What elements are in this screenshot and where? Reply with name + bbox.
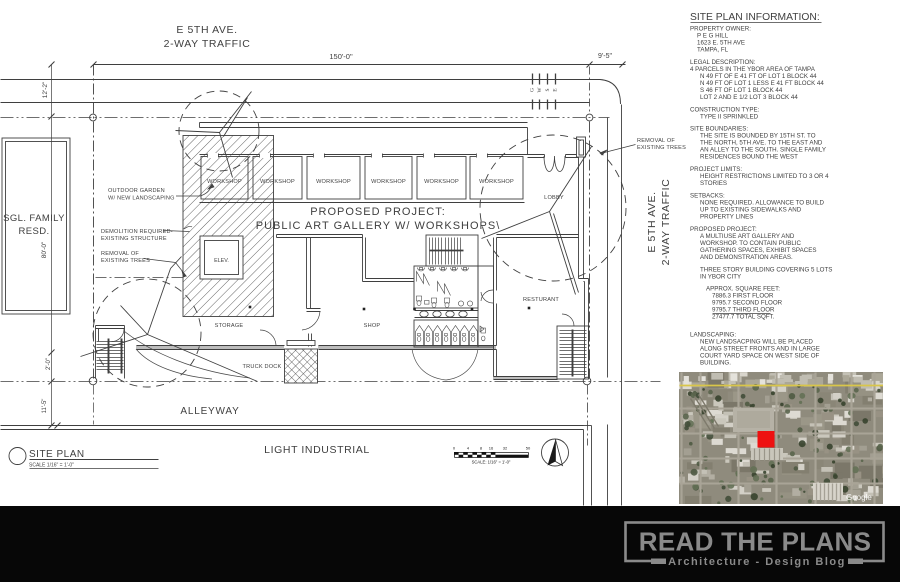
svg-text:LANDSCAPING:: LANDSCAPING: [690,332,736,339]
svg-text:PROPERTY LINES: PROPERTY LINES [700,214,753,221]
svg-text:ALONG STREET FRONTS AND IN LAR: ALONG STREET FRONTS AND IN LARGE [700,346,820,353]
svg-text:Google: Google [846,493,872,502]
svg-text:2'-0": 2'-0" [46,358,52,370]
svg-text:11'-5": 11'-5" [42,399,48,414]
svg-text:THE NORTH, 5TH AVE. TO THE EAS: THE NORTH, 5TH AVE. TO THE EAST AND [700,140,823,147]
svg-text:THE SITE IS BOUNDED BY 15TH ST: THE SITE IS BOUNDED BY 15TH ST. TO [700,133,816,140]
svg-text:S 46 FT OF LOT 1 BLOCK 44: S 46 FT OF LOT 1 BLOCK 44 [700,87,783,94]
svg-text:AN ALLEY TO THE SOUTH. SINGLE: AN ALLEY TO THE SOUTH. SINGLE FAMILY [700,147,826,154]
svg-text:PROPOSED PROJECT:: PROPOSED PROJECT: [310,206,446,218]
svg-text:WORKSHOP. TO CONTAIN PUBLIC: WORKSHOP. TO CONTAIN PUBLIC [700,240,801,247]
svg-text:LIGHT INDUSTRIAL: LIGHT INDUSTRIAL [264,444,370,456]
svg-text:16: 16 [489,446,494,451]
svg-text:TRUCK DOCK: TRUCK DOCK [243,364,282,370]
svg-text:27477.7 TOTAL SQFT.: 27477.7 TOTAL SQFT. [712,314,775,321]
svg-text:N 49 FT OF LOT 1 LESS E 41 FT: N 49 FT OF LOT 1 LESS E 41 FT BLOCK 44 [700,80,824,87]
svg-text:S: S [545,88,551,91]
svg-text:9795.7 THIRD FLOOR: 9795.7 THIRD FLOOR [712,307,775,314]
svg-text:THREE STORY BUILDING COVERING: THREE STORY BUILDING COVERING 5 LOTS [700,266,832,273]
svg-text:E 5TH AVE.: E 5TH AVE. [646,191,658,252]
svg-text:WORKSHOP: WORKSHOP [260,179,295,185]
svg-text:ELEV.: ELEV. [214,258,229,264]
svg-text:SCALE 1/16" = 1'-0": SCALE 1/16" = 1'-0" [29,463,74,469]
svg-text:Architecture - Design Blog: Architecture - Design Blog [668,556,846,568]
svg-text:COURT YARD SPACE ON WEST SIDE: COURT YARD SPACE ON WEST SIDE OF [700,353,820,360]
svg-text:TAMPA, FL: TAMPA, FL [697,47,729,54]
svg-text:RESD.: RESD. [18,226,49,237]
svg-text:ALLEYWAY: ALLEYWAY [180,406,239,417]
svg-text:APPROX. SQUARE FEET:: APPROX. SQUARE FEET: [706,286,780,293]
svg-text:E 5TH AVE.: E 5TH AVE. [176,24,237,36]
svg-text:4 PARCELS IN THE YBOR AREA OF: 4 PARCELS IN THE YBOR AREA OF TAMPA [690,66,816,73]
svg-text:7886.3 FIRST FLOOR: 7886.3 FIRST FLOOR [712,293,774,300]
svg-text:SHOP: SHOP [364,323,381,329]
svg-text:BUILDING.: BUILDING. [700,360,731,367]
svg-text:PROPERTY OWNER:: PROPERTY OWNER: [690,26,751,33]
svg-text:GATHERING SPACES, EXHIBIT SPAC: GATHERING SPACES, EXHIBIT SPACES [700,247,816,254]
svg-text:2-WAY TRAFFIC: 2-WAY TRAFFIC [660,179,672,266]
svg-text:A MULTIUSE ART GALLERY AND: A MULTIUSE ART GALLERY AND [700,233,795,240]
svg-text:REMOVAL OF: REMOVAL OF [101,251,139,257]
svg-text:READ THE PLANS: READ THE PLANS [639,527,871,557]
svg-text:AND DEMONSTRATION AREAS.: AND DEMONSTRATION AREAS. [700,254,793,261]
svg-text:32: 32 [503,446,508,451]
svg-text:W: W [537,87,543,93]
svg-text:REMOVAL OF: REMOVAL OF [637,138,675,144]
svg-text:PROJECT LIMITS:: PROJECT LIMITS: [690,166,742,173]
svg-text:UP TO EXISTING SIDEWALKS AND: UP TO EXISTING SIDEWALKS AND [700,207,802,214]
svg-text:LOBBY: LOBBY [544,195,564,201]
svg-text:12'-2": 12'-2" [42,81,49,98]
svg-text:HEIGHT RESTRICTIONS LIMITED TO: HEIGHT RESTRICTIONS LIMITED TO 3 OR 4 [700,173,829,180]
svg-text:CONSTRUCTION TYPE:: CONSTRUCTION TYPE: [690,106,760,113]
svg-text:NONE REQUIRED. ALLOWANCE TO BU: NONE REQUIRED. ALLOWANCE TO BUILD [700,200,825,207]
svg-text:W/ NEW LANDSCAPING: W/ NEW LANDSCAPING [108,196,175,202]
svg-text:TYPE II SPRINKLED: TYPE II SPRINKLED [700,113,759,120]
svg-text:9'-5": 9'-5" [598,53,612,60]
svg-text:1623 E. 5TH AVE: 1623 E. 5TH AVE [697,40,745,47]
svg-text:SITE PLAN INFORMATION:: SITE PLAN INFORMATION: [690,12,820,23]
svg-text:STORAGE: STORAGE [215,323,244,329]
svg-text:N 49 FT OF E 41 FT OF LOT 1 BL: N 49 FT OF E 41 FT OF LOT 1 BLOCK 44 [700,73,817,80]
svg-text:EXISTING STRUCTURE: EXISTING STRUCTURE [101,236,167,242]
svg-text:IN YBOR CITY: IN YBOR CITY [700,273,741,280]
svg-text:EXISTING TREES: EXISTING TREES [101,258,150,264]
svg-text:WORKSHOP: WORKSHOP [479,179,514,185]
svg-text:SITE BOUNDARIES:: SITE BOUNDARIES: [690,126,748,133]
svg-text:SITE PLAN: SITE PLAN [29,449,85,460]
svg-text:PUBLIC ART GALLERY W/ WORKSHOP: PUBLIC ART GALLERY W/ WORKSHOPS\ [256,220,501,232]
svg-text:P E G HILL: P E G HILL [697,33,729,40]
svg-text:LOT 2 AND E 1/2 LOT 3 BLOCK 44: LOT 2 AND E 1/2 LOT 3 BLOCK 44 [700,94,798,101]
svg-text:EXISTING TREES: EXISTING TREES [637,145,686,151]
svg-text:OUTDOOR GARDEN: OUTDOOR GARDEN [108,188,165,194]
svg-text:NEW LANDSACPING WILL BE PLACED: NEW LANDSACPING WILL BE PLACED [700,339,813,346]
svg-text:SGL. FAMILY: SGL. FAMILY [3,213,65,224]
svg-text:WORKSHOP: WORKSHOP [424,179,459,185]
svg-text:WORKSHOP: WORKSHOP [371,179,406,185]
svg-text:2-WAY TRAFFIC: 2-WAY TRAFFIC [164,38,251,50]
svg-text:WORKSHOP: WORKSHOP [316,179,351,185]
svg-text:RESTURANT: RESTURANT [523,297,559,303]
svg-text:LEGAL DESCRIPTION:: LEGAL DESCRIPTION: [690,59,756,66]
svg-text:STORIES: STORIES [700,180,727,187]
svg-text:50: 50 [526,446,531,451]
svg-text:150'-0": 150'-0" [329,52,353,61]
svg-text:SETBACKS:: SETBACKS: [690,193,725,200]
svg-text:PROPOSED PROJECT:: PROPOSED PROJECT: [690,226,757,233]
svg-text:G: G [529,88,535,92]
svg-text:DEMOLITION REQUIRED-: DEMOLITION REQUIRED- [101,229,173,235]
svg-text:80'-0": 80'-0" [41,241,48,258]
svg-text:9795.7 SECOND FLOOR: 9795.7 SECOND FLOOR [712,300,783,307]
svg-text:SCALE: 1/16" = 1'-0": SCALE: 1/16" = 1'-0" [472,460,511,465]
svg-text:RESIDENCES BOUND THE WEST: RESIDENCES BOUND THE WEST [700,154,798,161]
